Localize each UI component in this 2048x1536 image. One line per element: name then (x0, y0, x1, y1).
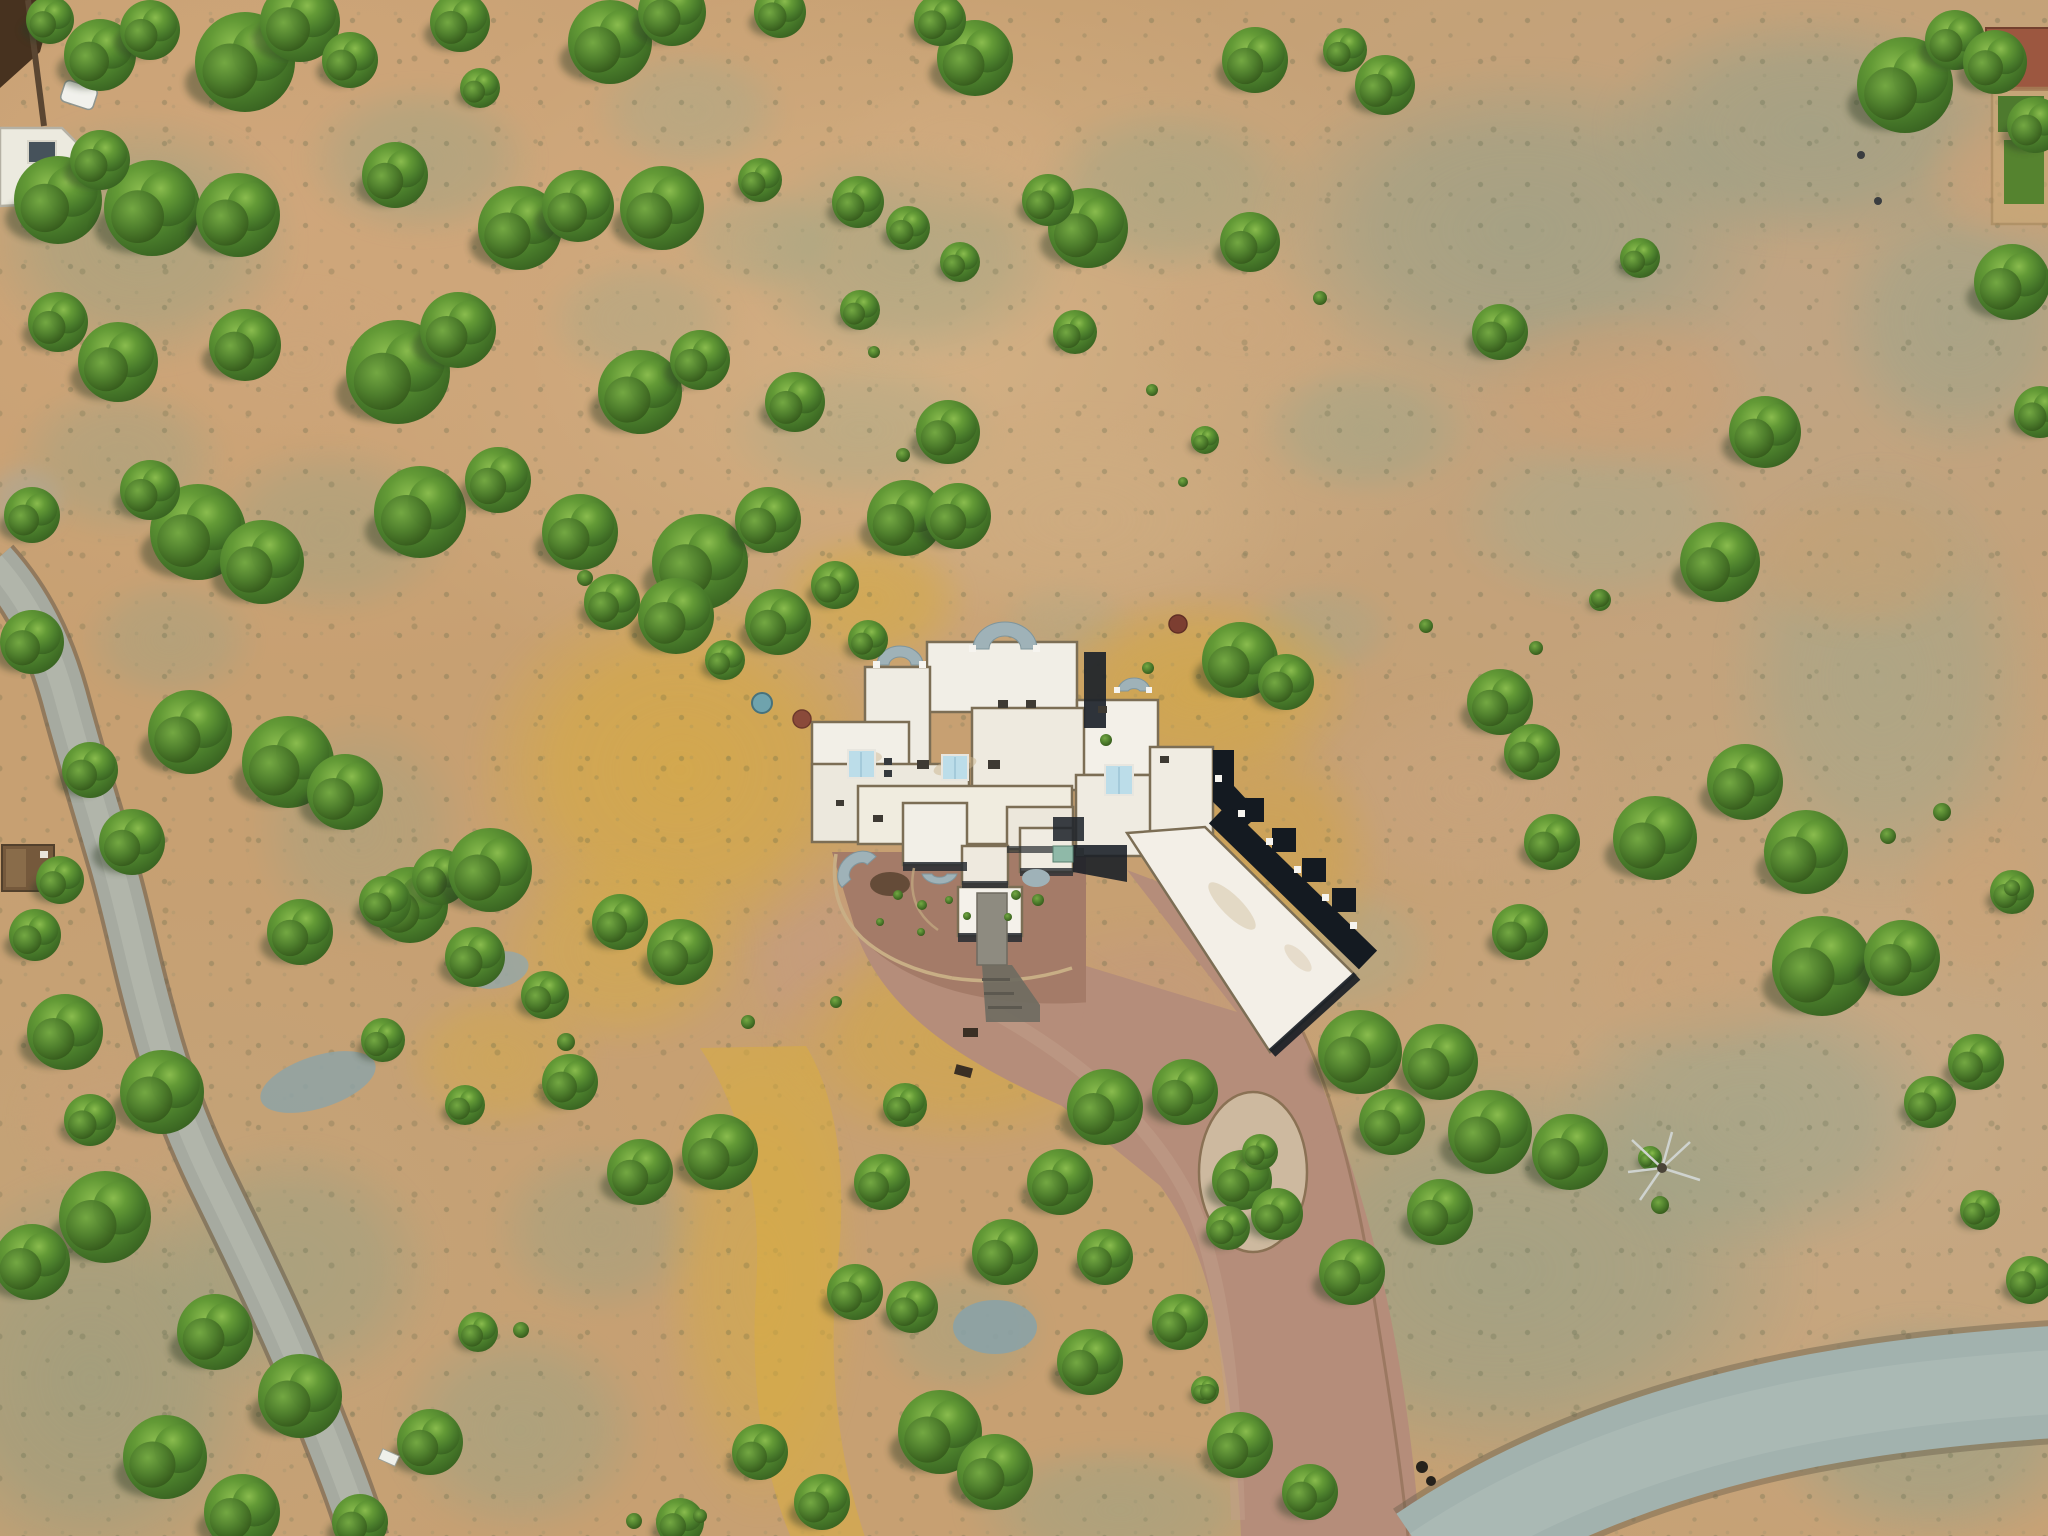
tree-canopy (1528, 832, 1559, 863)
tree-canopy (2010, 1271, 2036, 1297)
tree-canopy (5, 630, 40, 665)
tree (1899, 1076, 1956, 1128)
tree-canopy (126, 1076, 172, 1122)
tree (1188, 426, 1219, 454)
shrub (1933, 803, 1951, 821)
tree (1524, 1114, 1608, 1190)
roof-vent (873, 815, 883, 822)
tree-canopy (1364, 1110, 1400, 1146)
tree (612, 166, 704, 250)
tree-canopy (84, 347, 128, 391)
debris (963, 1028, 978, 1037)
tree (390, 1409, 463, 1475)
tree (936, 242, 980, 282)
tree (1466, 304, 1528, 360)
person-dot (1874, 197, 1882, 205)
debris (1416, 1461, 1428, 1473)
shrub (876, 918, 884, 926)
portal-pillar (1322, 894, 1329, 901)
tree (664, 330, 730, 390)
tree (1017, 174, 1074, 226)
fire-pit (1169, 615, 1187, 633)
dead-tree-branch (1640, 1168, 1662, 1200)
shrub (1011, 890, 1021, 900)
tree-canopy (470, 468, 506, 504)
tree-canopy (448, 1098, 470, 1120)
tree-canopy (125, 19, 158, 52)
tree (806, 561, 859, 609)
tree-canopy (943, 44, 985, 86)
tree-canopy (1193, 435, 1208, 450)
tree (4, 909, 61, 961)
shrub (1591, 589, 1609, 607)
arc-post (919, 661, 926, 668)
tree-canopy (1262, 672, 1293, 703)
tree (882, 206, 930, 250)
tree (640, 919, 713, 985)
tree-canopy (1360, 74, 1393, 107)
tree (458, 447, 531, 513)
tree (456, 68, 500, 108)
tree-canopy (1032, 1170, 1068, 1206)
tree (114, 0, 180, 60)
tree (827, 176, 884, 228)
shrub (1651, 1196, 1669, 1214)
tree (734, 158, 782, 202)
walkway (977, 893, 1007, 965)
roof-vent (1098, 706, 1107, 713)
tree-canopy (836, 192, 865, 221)
tree-canopy (1734, 419, 1774, 459)
arc-post (873, 661, 880, 668)
shrub (1313, 291, 1327, 305)
tree-canopy (1930, 29, 1963, 62)
tree-canopy (1496, 922, 1527, 953)
tree (535, 170, 614, 242)
tree (355, 142, 428, 208)
tree-canopy (454, 854, 500, 900)
portal-shadow-step (1302, 858, 1326, 882)
tree-canopy (930, 504, 966, 540)
tree (1020, 1149, 1093, 1215)
tree-canopy (249, 745, 300, 796)
roof-unit (1076, 848, 1084, 856)
tree-canopy (68, 1110, 97, 1139)
tree-canopy (1870, 944, 1912, 986)
tree-canopy (1408, 1048, 1450, 1090)
tree (59, 1094, 116, 1146)
tree-canopy (484, 212, 530, 258)
arc-post (1033, 645, 1040, 652)
roof-block (962, 846, 1008, 884)
tree (749, 0, 806, 38)
tree-canopy (203, 44, 258, 99)
tree-canopy (75, 149, 108, 182)
tree-canopy (1245, 1145, 1265, 1165)
tree-canopy (1508, 742, 1539, 773)
tree-canopy (626, 192, 672, 238)
tree-canopy (1538, 1138, 1580, 1180)
tree-canopy (851, 633, 873, 655)
tree (1319, 28, 1367, 72)
tree-canopy (21, 184, 69, 232)
tree (836, 290, 880, 330)
tree-canopy (798, 1492, 829, 1523)
tree-canopy (157, 514, 210, 567)
tree (534, 494, 618, 570)
tree-canopy (461, 1325, 483, 1347)
tree-canopy (1780, 948, 1835, 1003)
tree-canopy (111, 190, 164, 243)
tree-canopy (548, 518, 590, 560)
tree-canopy (604, 376, 650, 422)
tree (965, 1219, 1038, 1285)
tree-canopy (1952, 1052, 1983, 1083)
tree (728, 487, 801, 553)
shrub (945, 896, 953, 904)
tree (441, 1085, 485, 1125)
roof-unit (1053, 846, 1073, 862)
tree-canopy (125, 479, 158, 512)
tree-canopy (675, 349, 708, 382)
tree (1699, 744, 1783, 820)
tree-canopy (313, 778, 355, 820)
portal-pillar (1350, 922, 1357, 929)
tree (844, 620, 888, 660)
tree-canopy (525, 986, 551, 1012)
dead-tree-branch (1662, 1168, 1700, 1180)
tree-canopy (1212, 1433, 1248, 1469)
tree (590, 350, 682, 434)
shrub (830, 996, 842, 1008)
shrub (2004, 880, 2020, 896)
tree-canopy (1713, 768, 1755, 810)
tree (202, 309, 281, 381)
tree-canopy (574, 26, 620, 72)
tree-canopy (2011, 115, 2042, 146)
tree (357, 1018, 405, 1062)
tree-canopy (326, 50, 357, 81)
tree-canopy (688, 1138, 730, 1180)
tree (1756, 810, 1848, 894)
tree (440, 828, 532, 912)
tree-canopy (264, 1380, 310, 1426)
tree-canopy (154, 716, 200, 762)
tree-canopy (0, 1248, 42, 1290)
mulch-bed (870, 872, 910, 896)
tree (631, 0, 706, 46)
portal-pillar (1266, 838, 1273, 845)
tree-canopy (1073, 1093, 1115, 1135)
roof-vent (998, 700, 1008, 708)
tree-canopy (736, 1442, 767, 1473)
roof-vent (1026, 700, 1036, 708)
tree (1400, 1179, 1473, 1245)
tree (424, 0, 490, 52)
tree (759, 372, 825, 432)
tree-canopy (426, 316, 468, 358)
tree-canopy (1963, 1203, 1985, 1225)
debris (1426, 1476, 1436, 1486)
tree-canopy (1081, 1247, 1112, 1278)
tree-canopy (1026, 190, 1055, 219)
tree-canopy (652, 940, 688, 976)
tree (536, 1054, 598, 1110)
tree (674, 1114, 758, 1190)
tree (1215, 27, 1288, 93)
tree (140, 690, 232, 774)
tree (1942, 1034, 2004, 1090)
fire-pit (793, 710, 811, 728)
tree-canopy (1770, 836, 1816, 882)
tree (114, 460, 180, 520)
tree-canopy (1472, 690, 1508, 726)
tree-canopy (13, 925, 42, 954)
tree-canopy (183, 1318, 225, 1360)
tree-canopy (1225, 231, 1258, 264)
roof-vent (1160, 756, 1169, 763)
well-cover (752, 693, 772, 713)
roof-vent (884, 758, 892, 765)
roof-block (903, 803, 967, 865)
portal-pillar (1238, 810, 1245, 817)
shrub (1200, 1384, 1216, 1400)
tree-canopy (1476, 322, 1507, 353)
tree-canopy (858, 1172, 889, 1203)
tree (1352, 1089, 1425, 1155)
tree-canopy (1412, 1200, 1448, 1236)
aerial-photo (0, 0, 2048, 1536)
tree-canopy (815, 576, 841, 602)
tree-canopy (546, 1072, 577, 1103)
tree (1966, 244, 2048, 320)
shrub (1178, 477, 1188, 487)
tree-canopy (66, 1200, 117, 1251)
tree-canopy (644, 602, 686, 644)
tree (738, 589, 811, 655)
tree-canopy (30, 11, 56, 37)
shrub (1419, 619, 1433, 633)
tree (701, 640, 745, 680)
tree-canopy (1686, 547, 1730, 591)
shrub (896, 448, 910, 462)
person-dot (1857, 151, 1865, 159)
debris (954, 1064, 973, 1078)
tree (1605, 796, 1697, 880)
tree-canopy (904, 1416, 950, 1462)
shrub (1529, 641, 1543, 655)
tree-canopy (708, 653, 730, 675)
tree-canopy (435, 11, 468, 44)
gravel-bed (1022, 869, 1050, 887)
tree (1200, 1412, 1273, 1478)
tree-canopy (214, 332, 254, 372)
tree-canopy (750, 610, 786, 646)
tree-canopy (740, 508, 776, 544)
tree-canopy (873, 504, 915, 546)
walkway-step (982, 978, 1010, 981)
tree-canopy (363, 892, 392, 921)
tree-canopy (1062, 1350, 1098, 1386)
tree-canopy (33, 311, 66, 344)
roof-vent (884, 770, 892, 777)
tree-canopy (1454, 1116, 1500, 1162)
tree (909, 0, 966, 46)
arc-post (1114, 687, 1120, 693)
tree (454, 1312, 498, 1352)
rock-outcrop (953, 1300, 1037, 1354)
tree (112, 1050, 204, 1134)
tree (1616, 238, 1660, 278)
tree-canopy (450, 946, 483, 979)
tree-canopy (463, 81, 485, 103)
tree (0, 610, 64, 674)
tree (169, 1294, 253, 1370)
tree (354, 876, 411, 928)
shrub (1880, 828, 1896, 844)
tree (881, 1281, 938, 1333)
tree-canopy (1324, 1260, 1360, 1296)
tree-canopy (354, 353, 411, 410)
tree (1518, 814, 1580, 870)
shrub (1146, 384, 1158, 396)
tree (1460, 669, 1533, 735)
tree-canopy (33, 1018, 75, 1060)
tree-canopy (1286, 1482, 1317, 1513)
tree-canopy (1324, 1036, 1370, 1082)
roof-vent (836, 800, 844, 806)
tree (188, 173, 280, 257)
tree-canopy (2018, 402, 2047, 431)
walkway-step (984, 992, 1014, 995)
tree-canopy (1217, 1169, 1250, 1202)
shrub (513, 1322, 529, 1338)
tree-canopy (1980, 268, 2022, 310)
roof-vent (988, 760, 1000, 769)
courtyard-shadow (962, 881, 1008, 888)
tree (1310, 1010, 1402, 1094)
shrub (1142, 662, 1154, 674)
shrub (917, 900, 927, 910)
tree (115, 1415, 207, 1499)
tree-canopy (890, 1297, 919, 1326)
tree-canopy (886, 1097, 910, 1121)
tree (600, 1139, 673, 1205)
tree-canopy (129, 1441, 175, 1487)
tree-canopy (364, 1032, 388, 1056)
tree-canopy (272, 920, 308, 956)
arc-post (1146, 687, 1152, 693)
tree (726, 1424, 788, 1480)
tree-canopy (1227, 48, 1263, 84)
tree-canopy (963, 1458, 1005, 1500)
shrub (917, 928, 925, 936)
tree-canopy (1623, 251, 1645, 273)
tree (586, 894, 648, 950)
tree-canopy (402, 1430, 438, 1466)
tree-canopy (1156, 1312, 1187, 1343)
portal-shadow-step (1272, 828, 1296, 852)
trailer-roof (6, 849, 26, 887)
tree (1214, 212, 1280, 272)
tree-canopy (1326, 42, 1350, 66)
tree (1440, 1090, 1532, 1174)
tree-canopy (1619, 822, 1665, 868)
portal-shadow-step (1332, 888, 1356, 912)
tree-canopy (921, 420, 956, 455)
trailer-highlight (40, 851, 48, 858)
tree-canopy (8, 505, 39, 536)
gravel-arc (1118, 678, 1150, 691)
tree-canopy (831, 1282, 862, 1313)
arc-post (969, 645, 976, 652)
roof-shadow (1084, 652, 1106, 728)
tree (1486, 904, 1548, 960)
tree (250, 1354, 342, 1438)
tree-canopy (1255, 1204, 1284, 1233)
portal-pillar (1294, 866, 1301, 873)
tree (2009, 386, 2048, 438)
tree-canopy (381, 495, 432, 546)
tree (1762, 916, 1872, 1016)
tree (2001, 1256, 2048, 1304)
scene-overlay (0, 0, 2048, 1536)
tree-canopy (202, 199, 248, 245)
tree-canopy (843, 303, 865, 325)
tree-canopy (943, 255, 965, 277)
tree-canopy (367, 163, 403, 199)
dead-tree-base (1657, 1163, 1667, 1173)
tree-canopy (40, 871, 66, 897)
tree (1049, 310, 1097, 354)
tree-canopy (1908, 1092, 1937, 1121)
tree-canopy (66, 760, 97, 791)
tree (1856, 920, 1940, 996)
tree-canopy (758, 2, 787, 31)
tree (1394, 1024, 1478, 1100)
tree (848, 1154, 910, 1210)
shrub (893, 890, 903, 900)
tree (412, 292, 496, 368)
shrub (577, 570, 593, 586)
tree-canopy (612, 1160, 648, 1196)
tree (1722, 396, 1801, 468)
tree (630, 578, 714, 654)
shrub (626, 1513, 642, 1529)
tree-canopy (1209, 1220, 1233, 1244)
tree-canopy (918, 10, 947, 39)
tree (0, 487, 60, 543)
tree-canopy (1864, 67, 1917, 120)
tree (19, 994, 103, 1070)
tree-canopy (1640, 1154, 1653, 1167)
tree (439, 927, 505, 987)
tree-canopy (643, 0, 680, 37)
tree (1050, 1329, 1123, 1395)
tree (1672, 522, 1760, 602)
tree-canopy (69, 42, 109, 82)
roof-shadow (1053, 817, 1084, 841)
shrub (741, 1015, 755, 1029)
shrub (1032, 894, 1044, 906)
tree (1146, 1294, 1208, 1350)
roof-block (972, 708, 1084, 790)
shrub (868, 346, 880, 358)
tree (22, 292, 88, 352)
shrub (1004, 913, 1012, 921)
tree-canopy (547, 193, 587, 233)
tree (879, 1083, 927, 1127)
